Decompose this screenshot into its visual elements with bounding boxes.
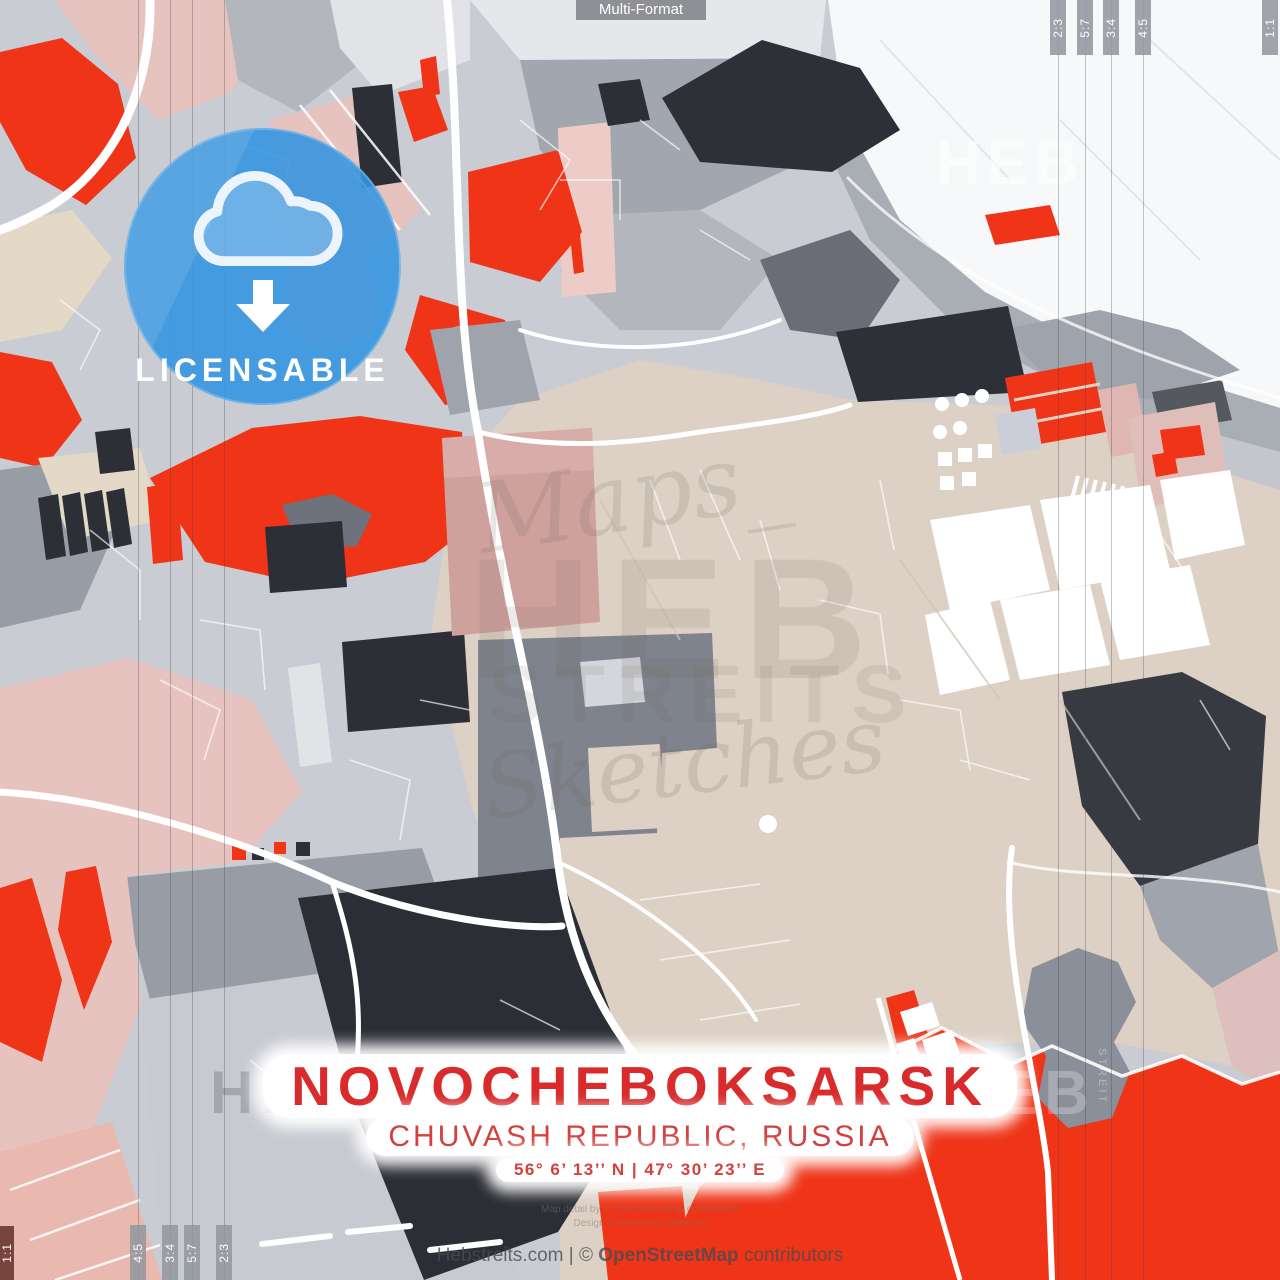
title-block: NOVOCHEBOKSARSK CHUVASH REPUBLIC, RUSSIA… — [0, 1054, 1280, 1182]
credit-osm: OpenStreetMap — [598, 1245, 738, 1266]
format-bar-3-4: 3:4 — [1103, 0, 1119, 55]
coordinates-label: 56° 6’ 13’’ N | 47° 30’ 23’’ E — [496, 1158, 784, 1182]
licensable-badge: LICENSABLE — [124, 128, 401, 405]
credit-separator: | — [569, 1245, 574, 1266]
badge-label: LICENSABLE — [135, 352, 389, 389]
credit-copyright: © — [579, 1245, 593, 1266]
map-poster: Maps_ HEB STREITS Sketches HEB STREIT HE… — [0, 0, 1280, 1280]
multi-format-label: Multi-Format — [576, 0, 706, 20]
format-bar-1-1-right: 1:1 — [1262, 0, 1278, 55]
multi-format-text: Multi-Format — [599, 0, 683, 19]
credit-site: Hebstreits.com — [437, 1245, 564, 1266]
format-bar-5-7: 5:7 — [1077, 0, 1093, 55]
cloud-download-icon — [179, 158, 347, 276]
region-subtitle: CHUVASH REPUBLIC, RUSSIA — [366, 1118, 913, 1156]
credit-suffix: contributors — [744, 1245, 843, 1266]
credits-line: Hebstreits.com | © OpenStreetMap contrib… — [0, 1245, 1280, 1267]
city-title: NOVOCHEBOKSARSK — [263, 1054, 1017, 1118]
format-bar-4-5: 4:5 — [1135, 0, 1151, 55]
format-bar-2-3: 2:3 — [1050, 0, 1066, 55]
download-arrow-icon — [236, 280, 290, 332]
